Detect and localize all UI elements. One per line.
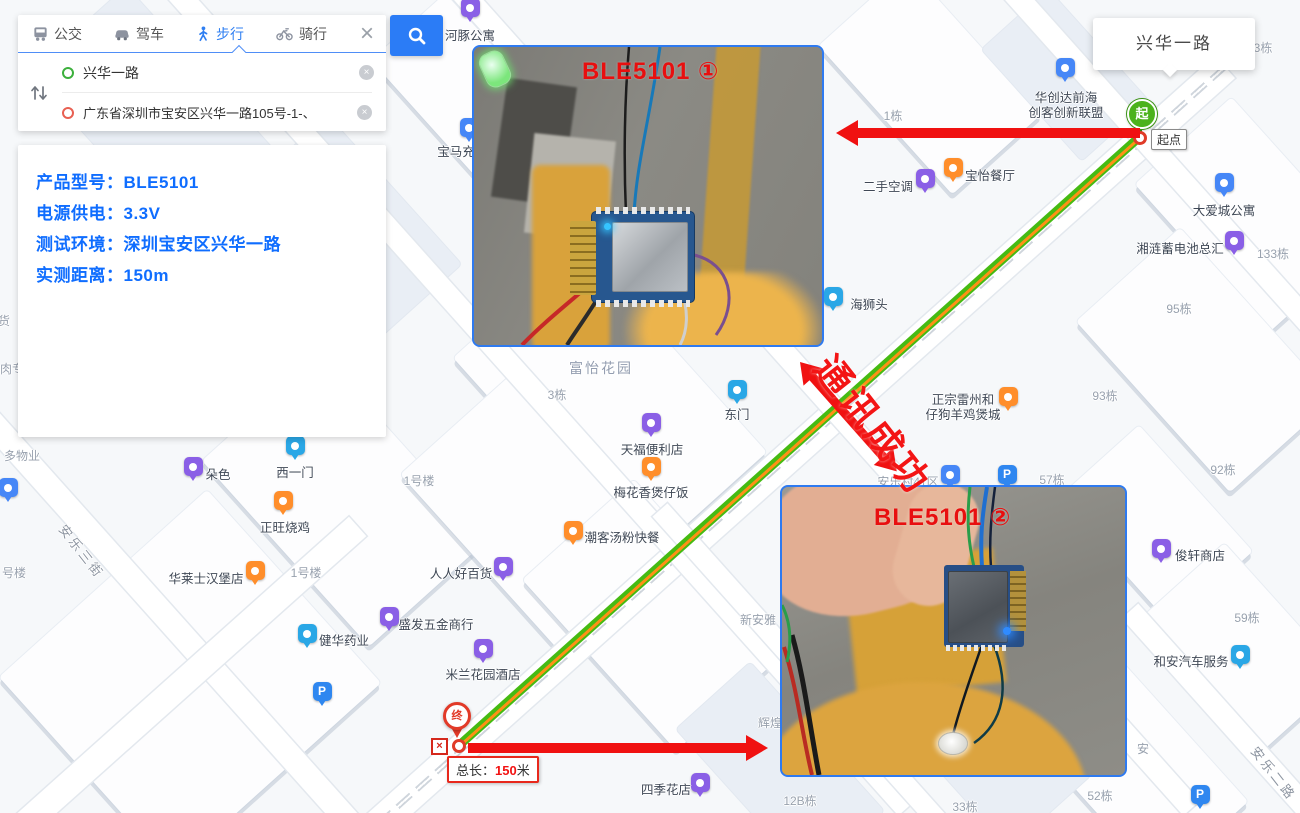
bike-icon	[275, 25, 294, 42]
origin-input-row[interactable]: 兴华一路 ×	[18, 53, 386, 92]
photo1-caption: BLE5101 ①	[582, 57, 719, 86]
end-remove-button[interactable]: ×	[431, 738, 448, 755]
transport-tabs: 公交 驾车 步行 骑行 ×	[18, 15, 386, 53]
photo1-module-teeth-top	[596, 207, 690, 214]
total-value: 150	[495, 763, 517, 778]
photo2-led-blue	[1003, 627, 1011, 635]
tab-drive[interactable]: 驾车	[113, 24, 164, 44]
photo1-gold-connector	[570, 221, 596, 295]
arrow-to-photo2	[468, 735, 768, 761]
walk-icon	[195, 25, 211, 43]
clear-destination-button[interactable]: ×	[357, 105, 372, 120]
photo1-module-teeth-bottom	[596, 300, 690, 307]
destination-input[interactable]: 广东省深圳市宝安区兴华一路105号-1-、	[83, 103, 357, 122]
info-distance: 实测距离：150m	[36, 260, 386, 291]
tab-walk[interactable]: 步行	[195, 24, 244, 44]
tab-drive-label: 驾车	[136, 24, 164, 44]
clear-origin-button[interactable]: ×	[359, 65, 374, 80]
photo2-teeth-bottom	[946, 645, 1008, 651]
bus-icon	[32, 25, 49, 42]
road-name-tooltip: 兴华一路	[1093, 18, 1255, 70]
device-photo-2: BLE5101 ②	[780, 485, 1127, 777]
arrowhead-left	[836, 120, 858, 146]
info-model: 产品型号：BLE5101	[36, 167, 386, 198]
route-inputs: 兴华一路 × 广东省深圳市宝安区兴华一路105号-1-、 ×	[18, 53, 386, 132]
info-environment: 测试环境：深圳宝安区兴华一路	[36, 229, 386, 260]
tab-walk-label: 步行	[216, 24, 244, 44]
photo2-shield	[948, 571, 1008, 643]
info-power: 电源供电：3.3V	[36, 198, 386, 229]
search-button[interactable]	[390, 15, 443, 56]
origin-input[interactable]: 兴华一路	[83, 63, 359, 83]
map-viewport[interactable]: 河豚公寓宝马充华创达前海创客创新联盟二手空调宝怡餐厅大爱城公寓湘涟蓄电池总汇海狮…	[0, 0, 1300, 813]
total-unit: 米	[517, 763, 530, 778]
total-label: 总长：	[456, 763, 495, 778]
arrow-shaft	[468, 743, 748, 753]
car-icon	[113, 25, 131, 42]
arrow-shaft	[856, 128, 1140, 138]
start-point-label: 起点	[1151, 129, 1187, 150]
photo2-gold-pins	[1010, 571, 1026, 631]
swap-origin-destination-icon[interactable]	[28, 83, 50, 103]
tab-bus[interactable]: 公交	[32, 24, 82, 44]
route-search-panel: 公交 驾车 步行 骑行 × 兴华一路 ×	[18, 15, 386, 131]
end-pin[interactable]: 终	[443, 702, 471, 730]
device-photo-1: BLE5101 ①	[472, 45, 824, 347]
tab-bike-label: 骑行	[299, 24, 327, 44]
arrow-to-photo1	[836, 120, 1140, 146]
close-panel-button[interactable]: ×	[358, 22, 376, 46]
photo1-led-blue	[604, 223, 611, 230]
photo2-caption: BLE5101 ②	[874, 503, 1011, 532]
origin-dot-icon	[62, 67, 74, 79]
arrowhead-right	[746, 735, 768, 761]
tab-bike[interactable]: 骑行	[275, 24, 327, 44]
destination-input-row[interactable]: 广东省深圳市宝安区兴华一路105号-1-、 ×	[62, 92, 372, 132]
search-icon	[406, 25, 428, 47]
route-end-node	[452, 739, 466, 753]
photo1-shield	[612, 222, 688, 292]
destination-dot-icon	[62, 107, 74, 119]
product-info-panel: 产品型号：BLE5101 电源供电：3.3V 测试环境：深圳宝安区兴华一路 实测…	[18, 145, 386, 437]
photo2-led-clear	[938, 732, 968, 755]
tab-bus-label: 公交	[54, 24, 82, 44]
